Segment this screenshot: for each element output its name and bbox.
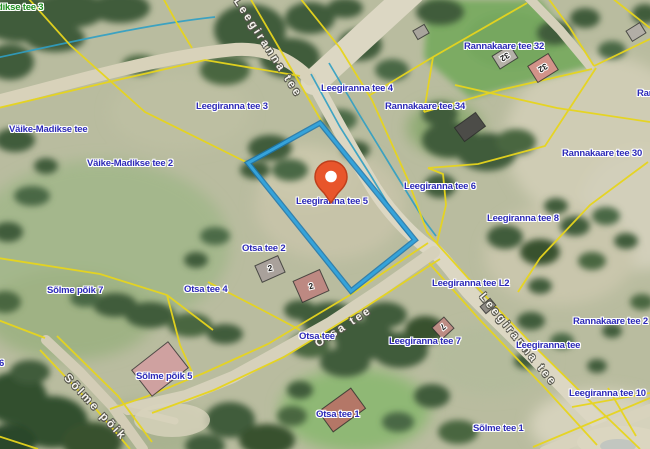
location-marker-pin[interactable]: [311, 159, 352, 206]
map-viewport[interactable]: 32 32 2 2 7 Leegiranna tee Otsa tee Sõlm…: [0, 0, 650, 449]
address-label: Leegiranna tee L2: [432, 278, 509, 289]
address-label: Otsa tee 4: [184, 284, 227, 295]
address-label: Rannakaare tee 32: [464, 41, 544, 52]
address-label: Otsa tee 2: [242, 243, 285, 254]
address-label: Sõlme tee 1: [473, 423, 524, 434]
address-label: Leegiranna tee 7: [389, 336, 461, 347]
address-label: Otsa tee 1: [316, 409, 359, 420]
address-label: Rannakaare tee 34: [385, 101, 465, 112]
address-label: Leegiranna tee 4: [321, 83, 393, 94]
address-label: Leegiranna tee: [516, 340, 580, 351]
address-label: Leegiranna tee 10: [569, 388, 646, 399]
address-label: Leegiranna tee 3: [196, 101, 268, 112]
address-label: 6: [0, 358, 4, 369]
address-label: Väike-Madikse tee: [9, 124, 87, 135]
address-label: Sõlme põik 5: [136, 371, 192, 382]
pin-hole: [325, 171, 337, 183]
address-label: Leegiranna tee 8: [487, 213, 559, 224]
address-label: Otsa tee: [299, 331, 335, 342]
address-label: Leegiranna tee 6: [404, 181, 476, 192]
address-label: Sõlme põik 7: [47, 285, 103, 296]
address-label: Rannakaare tee 30: [562, 148, 642, 159]
address-label: dikse tee 3: [0, 2, 43, 13]
building-solme-poik-5: [132, 342, 189, 396]
building-small-ne: [626, 23, 646, 42]
address-label: Rannakaare tee 2: [573, 316, 648, 327]
address-label: Väike-Madikse tee 2: [87, 158, 173, 169]
address-label: Rannakaare te: [637, 88, 650, 99]
